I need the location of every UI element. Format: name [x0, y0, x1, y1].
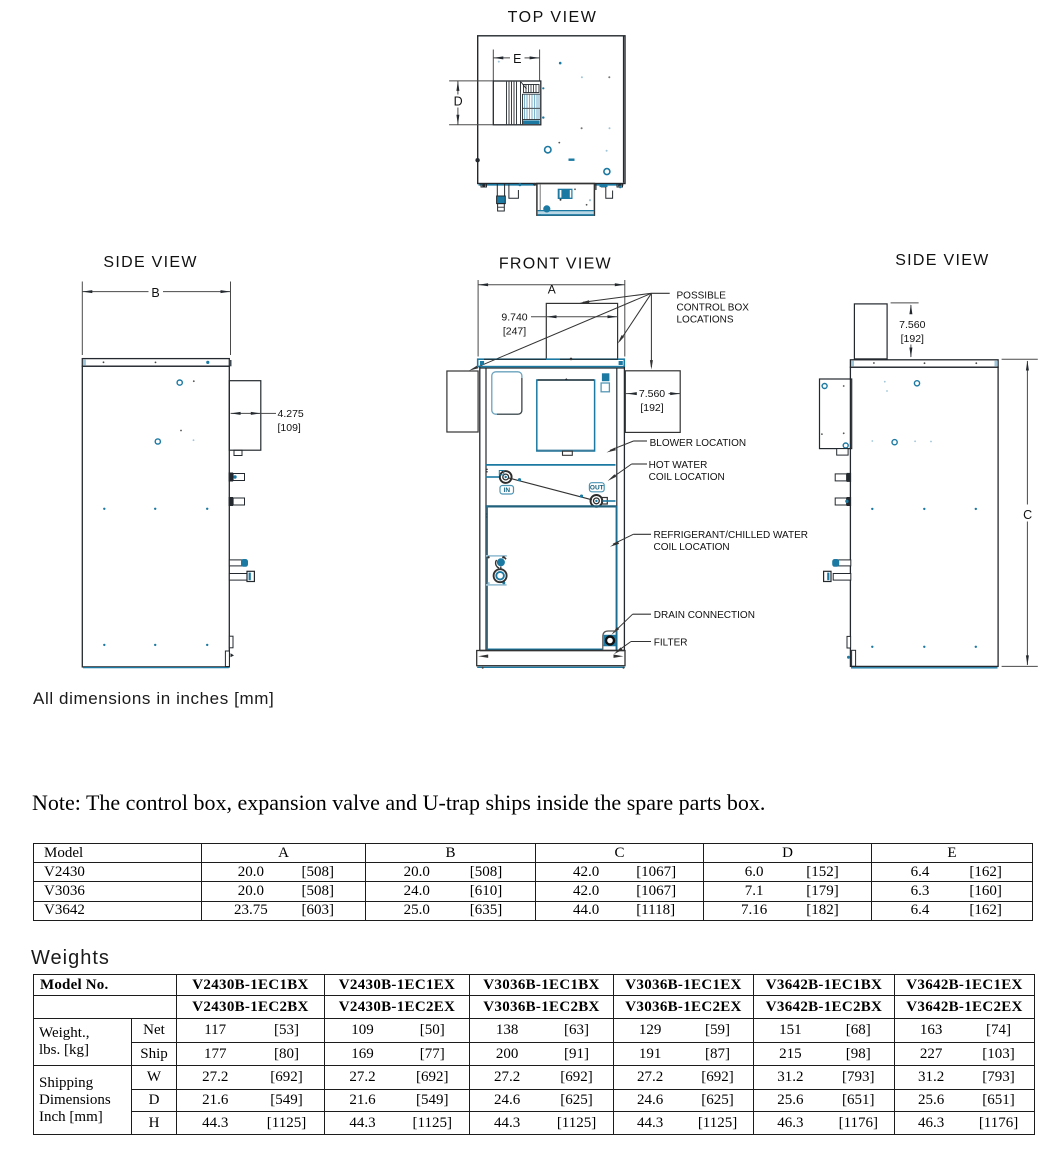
svg-text:B: B — [151, 286, 159, 300]
svg-text:LOCATIONS: LOCATIONS — [677, 315, 734, 326]
svg-text:[109]: [109] — [278, 422, 301, 434]
svg-text:7.560: 7.560 — [899, 319, 925, 331]
svg-text:FRONT VIEW: FRONT VIEW — [499, 255, 612, 272]
svg-text:OUT: OUT — [590, 485, 604, 492]
svg-text:IN: IN — [504, 487, 511, 494]
svg-text:SIDE VIEW: SIDE VIEW — [895, 252, 989, 269]
svg-text:FILTER: FILTER — [654, 637, 688, 648]
svg-text:9.740: 9.740 — [501, 311, 527, 323]
svg-text:[192]: [192] — [640, 402, 663, 414]
svg-text:C: C — [1023, 508, 1032, 522]
svg-text:DRAIN CONNECTION: DRAIN CONNECTION — [654, 610, 755, 621]
svg-text:D: D — [454, 95, 463, 109]
svg-text:[192]: [192] — [901, 333, 924, 345]
svg-text:A: A — [548, 283, 556, 297]
svg-text:COIL LOCATION: COIL LOCATION — [649, 472, 725, 483]
svg-text:TOP VIEW: TOP VIEW — [508, 9, 598, 26]
svg-text:[247]: [247] — [503, 325, 526, 337]
svg-text:REFRIGERANT/CHILLED WATER: REFRIGERANT/CHILLED WATER — [654, 530, 808, 541]
svg-text:CONTROL BOX: CONTROL BOX — [677, 303, 750, 314]
svg-text:SIDE VIEW: SIDE VIEW — [103, 254, 197, 271]
svg-text:7.560: 7.560 — [639, 388, 665, 400]
svg-text:4.275: 4.275 — [278, 408, 304, 420]
svg-text:BLOWER LOCATION: BLOWER LOCATION — [650, 438, 747, 449]
svg-text:HOT WATER: HOT WATER — [649, 460, 708, 471]
svg-text:COIL LOCATION: COIL LOCATION — [654, 542, 730, 553]
svg-text:E: E — [513, 52, 521, 66]
svg-text:POSSIBLE: POSSIBLE — [677, 291, 727, 302]
